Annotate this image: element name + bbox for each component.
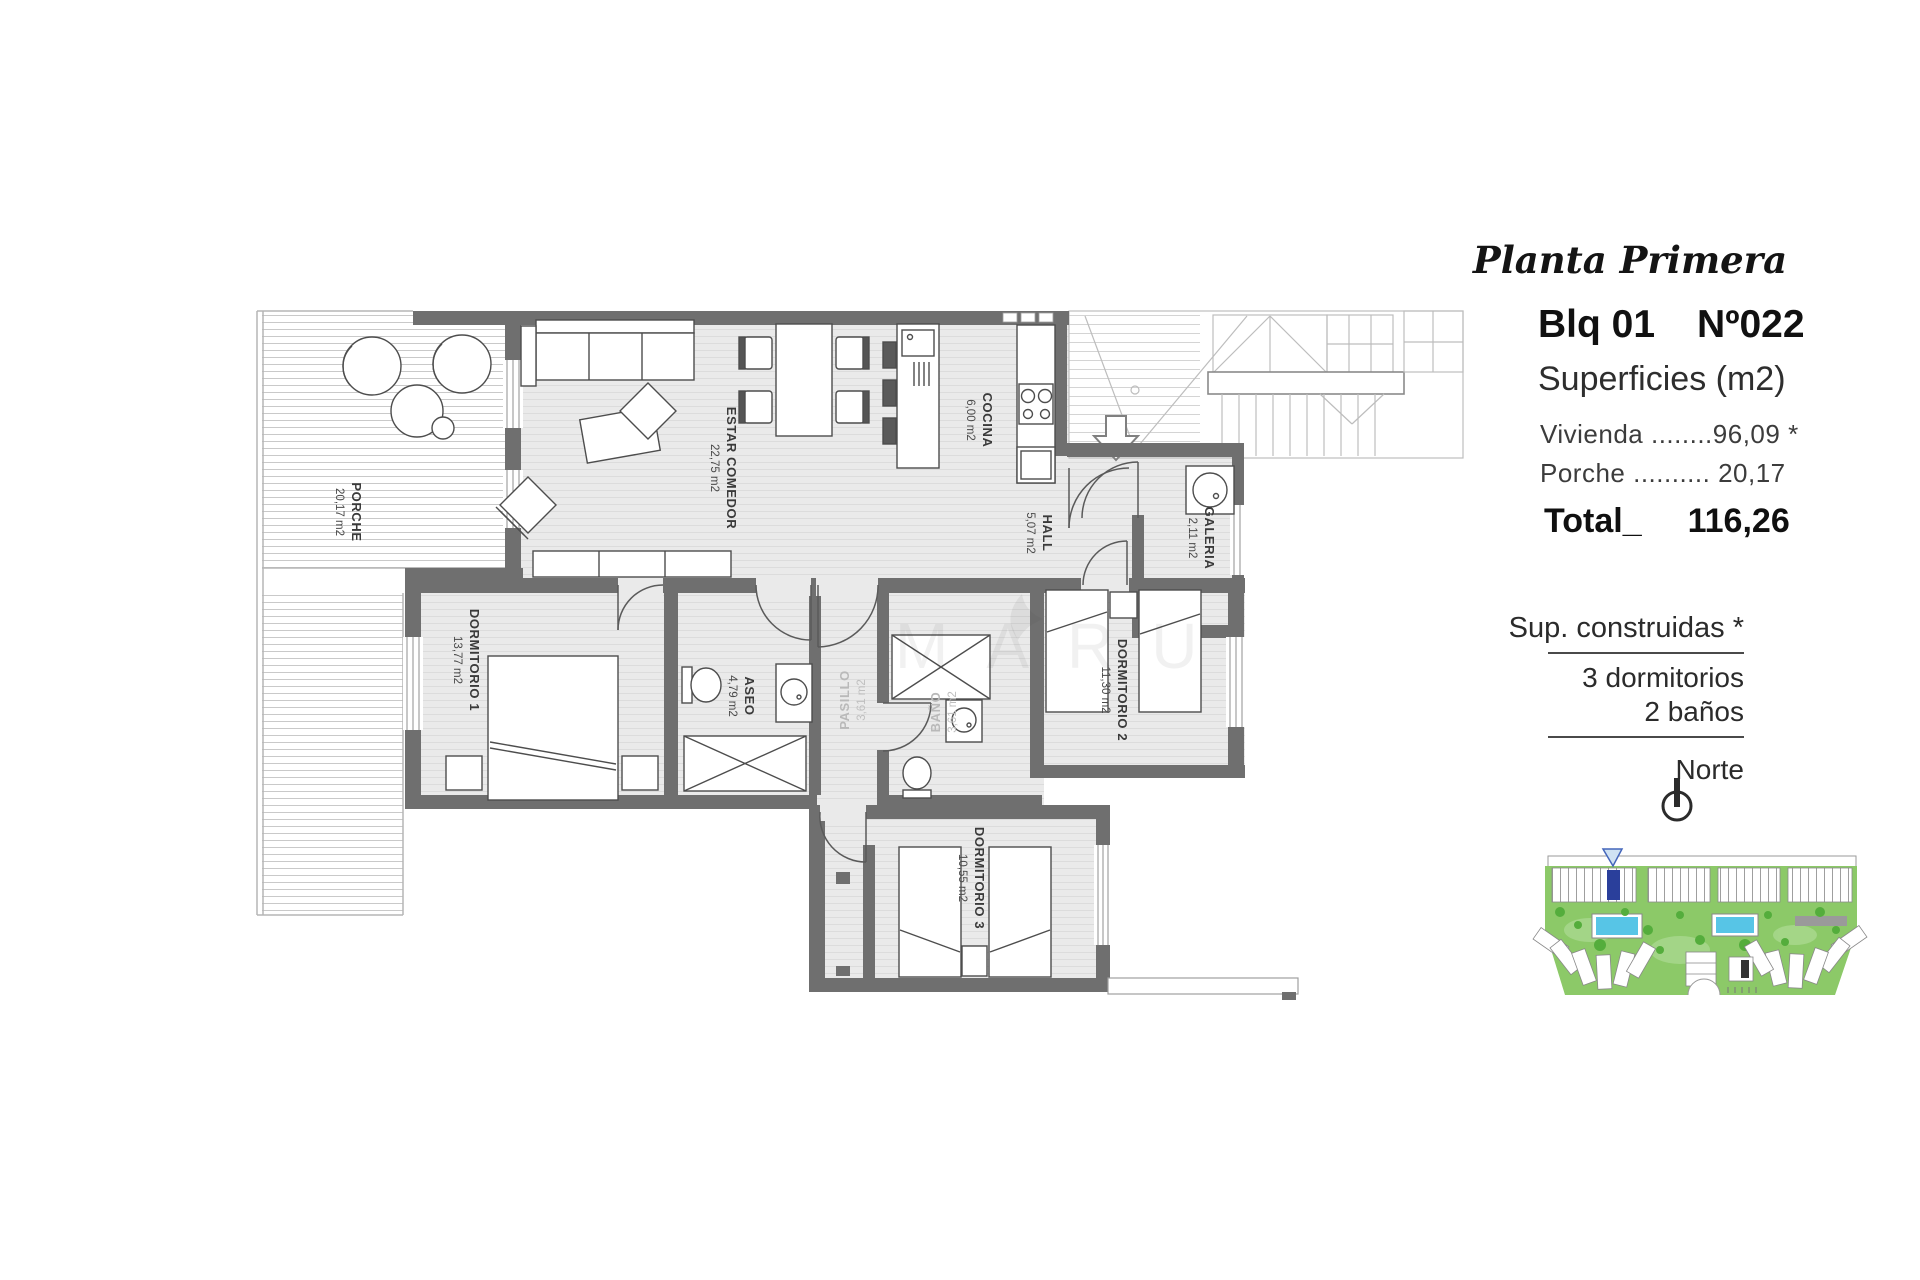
svg-text:COCINA: COCINA (980, 393, 995, 448)
svg-text:DORMITORIO 3: DORMITORIO 3 (972, 827, 987, 929)
block-unit-row: Blq 01 Nº022 (1538, 303, 1805, 347)
svg-text:20,17 m2: 20,17 m2 (333, 488, 345, 536)
sup-construidas-heading: Sup. construidas * (1400, 612, 1744, 645)
dormitorios-count: 3 dormitorios (1400, 661, 1744, 695)
svg-text:4,79 m2: 4,79 m2 (726, 675, 738, 717)
site-building-row-top (1552, 868, 1852, 902)
divider (1548, 652, 1744, 654)
sofa (521, 320, 694, 386)
svg-text:HALL: HALL (1040, 514, 1055, 551)
unit-number: Nº022 (1697, 303, 1804, 347)
highlighted-unit (1607, 870, 1620, 900)
floorplan-page: MARU PORCHE 20,17 m2 ESTAR COMEDOR 22,75… (0, 0, 1920, 1280)
svg-text:DORMITORIO 1: DORMITORIO 1 (467, 609, 482, 711)
total-row: Total_ 116,26 (1544, 502, 1790, 541)
svg-text:PORCHE: PORCHE (349, 482, 364, 541)
north-arrow-icon (1650, 774, 1706, 830)
watermark-text: MARU (895, 610, 1235, 682)
banos-count: 2 baños (1400, 695, 1744, 729)
svg-text:DORMITORIO 2: DORMITORIO 2 (1115, 639, 1130, 741)
divider (1548, 736, 1744, 738)
svg-text:10,55 m2: 10,55 m2 (956, 854, 968, 902)
site-road (1548, 856, 1856, 867)
sideboard (533, 551, 731, 577)
site-plan (1530, 840, 1875, 1010)
site-pergola (1795, 916, 1847, 926)
svg-text:5,07 m2: 5,07 m2 (1024, 512, 1036, 554)
svg-text:GALERIA: GALERIA (1202, 507, 1217, 570)
svg-text:BAÑO: BAÑO (928, 692, 943, 733)
total-value: 116,26 (1688, 502, 1790, 541)
surfaces-heading: Superficies (m2) (1538, 360, 1786, 399)
porche-line: Porche .......... 20,17 (1540, 458, 1786, 489)
svg-text:ESTAR COMEDOR: ESTAR COMEDOR (724, 407, 739, 529)
svg-text:6,00 m2: 6,00 m2 (964, 399, 976, 441)
svg-text:ASEO: ASEO (742, 676, 757, 715)
svg-text:13,77 m2: 13,77 m2 (451, 636, 463, 684)
terrace-edge (1108, 978, 1298, 1000)
block-label: Blq 01 (1538, 303, 1655, 347)
svg-text:22,75 m2: 22,75 m2 (708, 444, 720, 492)
summary-block: Sup. construidas * 3 dormitorios 2 baños… (1400, 612, 1744, 786)
svg-text:3,61 m2: 3,61 m2 (947, 691, 959, 733)
svg-text:11,30 m2: 11,30 m2 (1099, 666, 1111, 713)
svg-text:3,61 m2: 3,61 m2 (856, 679, 868, 721)
kitchen-counter (1017, 325, 1055, 483)
svg-text:PASILLO: PASILLO (837, 670, 852, 730)
plan-title: Planta Primera (1470, 238, 1790, 282)
vivienda-line: Vivienda ........96,09 * (1540, 419, 1799, 450)
svg-text:2,11 m2: 2,11 m2 (1186, 518, 1198, 559)
floorplan-drawing: MARU PORCHE 20,17 m2 ESTAR COMEDOR 22,75… (0, 0, 1500, 1060)
total-label: Total_ (1544, 502, 1642, 541)
